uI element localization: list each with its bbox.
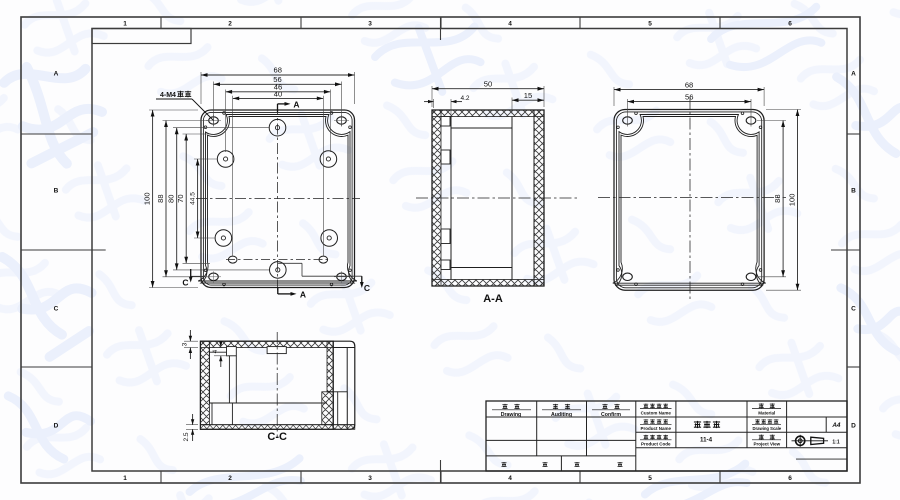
svg-text:A: A	[851, 71, 856, 78]
svg-text:56: 56	[685, 92, 693, 101]
svg-text:Drawing: Drawing	[501, 412, 521, 418]
svg-text:3: 3	[368, 21, 372, 28]
svg-text:15: 15	[524, 91, 532, 100]
svg-text:Custom Name: Custom Name	[641, 410, 672, 415]
svg-text:2: 2	[228, 475, 232, 482]
svg-text:B: B	[851, 188, 856, 195]
svg-text:100: 100	[143, 192, 152, 205]
svg-text:4: 4	[508, 21, 512, 28]
svg-text:2: 2	[228, 21, 232, 28]
svg-text:C-C: C-C	[267, 431, 287, 443]
svg-text:Material: Material	[758, 410, 775, 415]
svg-text:5: 5	[648, 475, 652, 482]
svg-text:80: 80	[167, 195, 176, 203]
svg-text:C: C	[182, 278, 188, 288]
svg-text:Auditing: Auditing	[551, 412, 572, 418]
svg-text:88: 88	[773, 194, 782, 202]
svg-text:Project View: Project View	[753, 441, 780, 446]
svg-text:68: 68	[274, 66, 282, 75]
svg-text:70: 70	[176, 194, 185, 202]
svg-text:6: 6	[788, 21, 792, 28]
svg-text:2.5: 2.5	[183, 432, 190, 441]
svg-text:3: 3	[182, 342, 189, 346]
svg-text:1: 1	[123, 475, 127, 482]
svg-text:11-4: 11-4	[700, 436, 713, 443]
svg-text:C: C	[851, 306, 856, 313]
svg-text:Confirm: Confirm	[601, 412, 621, 418]
svg-text:C: C	[54, 306, 59, 313]
svg-text:A-A: A-A	[483, 293, 503, 305]
svg-text:1: 1	[123, 21, 127, 28]
svg-text:6: 6	[788, 475, 792, 482]
svg-text:B: B	[54, 188, 59, 195]
svg-text:Product Code: Product Code	[641, 441, 671, 446]
svg-text:D: D	[851, 423, 856, 430]
svg-text:3: 3	[368, 475, 372, 482]
svg-text:A: A	[54, 71, 59, 78]
svg-text:1:1: 1:1	[832, 439, 839, 445]
svg-text:40: 40	[274, 89, 282, 98]
svg-text:A: A	[293, 100, 299, 110]
svg-text:5: 5	[648, 21, 652, 28]
svg-text:Drawing Scale: Drawing Scale	[752, 426, 781, 431]
svg-text:4: 4	[508, 475, 512, 482]
svg-text:68: 68	[685, 80, 693, 89]
svg-text:A: A	[300, 290, 306, 300]
svg-text:4: 4	[212, 349, 219, 353]
svg-text:44.5: 44.5	[190, 192, 197, 205]
svg-text:A4: A4	[831, 422, 841, 429]
svg-text:C: C	[364, 283, 370, 293]
svg-text:50: 50	[484, 79, 492, 88]
svg-text:4-M4: 4-M4	[160, 92, 176, 99]
svg-text:4.2: 4.2	[460, 95, 469, 102]
svg-text:D: D	[54, 423, 59, 430]
svg-text:88: 88	[156, 194, 165, 202]
svg-text:100: 100	[788, 194, 797, 207]
svg-text:Product Name: Product Name	[641, 426, 672, 431]
